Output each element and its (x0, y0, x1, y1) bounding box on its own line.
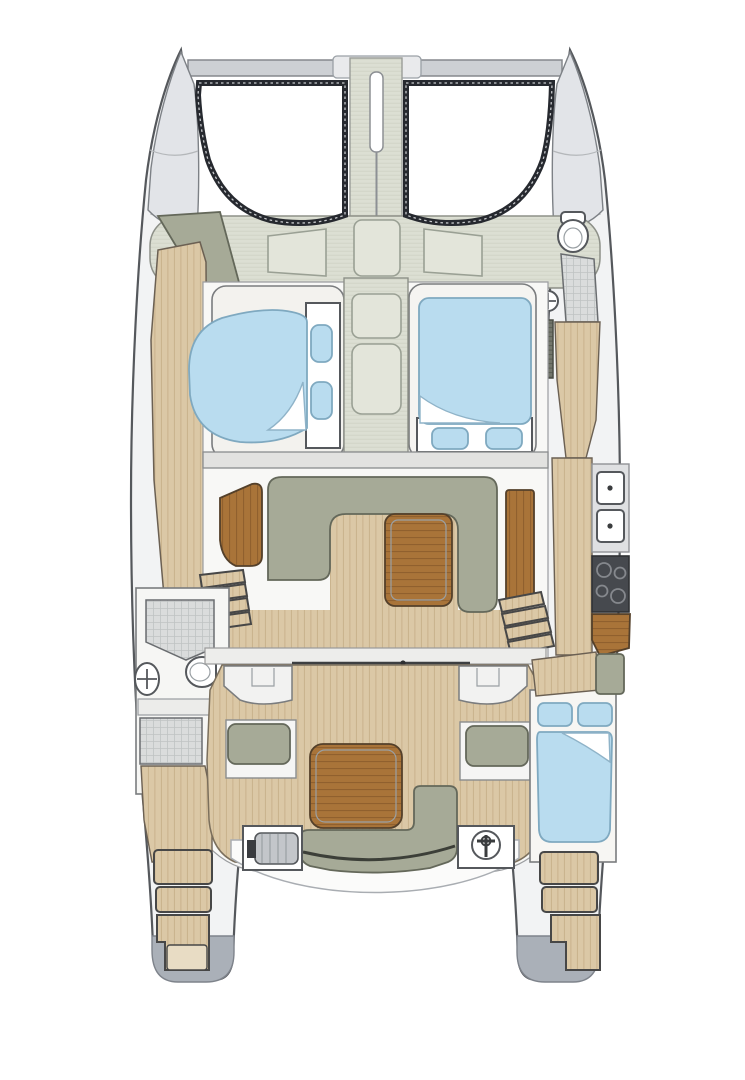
pillow (311, 325, 332, 362)
mast-bulkhead (203, 452, 548, 468)
foredeck-hatch-starboard (424, 229, 482, 276)
pillow (486, 428, 522, 449)
salon-table (385, 514, 452, 606)
mattress (419, 298, 531, 424)
deck-plan-drawing (0, 0, 745, 1080)
walkway-hatch-2 (352, 344, 401, 414)
port-trampoline (198, 83, 345, 223)
starboard-aft-cabin (530, 652, 624, 862)
cockpit-table (310, 744, 402, 828)
starboard-bench-cushion (466, 726, 528, 766)
starboard-forward-cabin-berth (417, 298, 532, 452)
salon-floor-aft (213, 610, 540, 650)
port-forward-cabin-berth (189, 303, 340, 448)
shower-floor-tiled (140, 718, 202, 764)
transom-locker (243, 826, 302, 870)
pillow (311, 382, 332, 419)
toilet-bowl (558, 220, 588, 252)
cabin-entry-wood (532, 652, 600, 696)
chart-seat (220, 484, 262, 566)
aft-deck-pad (596, 654, 624, 694)
galley-floor (552, 458, 592, 655)
galley (552, 458, 630, 656)
galley-cabinet (506, 490, 534, 604)
catamaran-floor-plan (0, 0, 745, 1080)
walkway-hatch-1 (352, 294, 401, 338)
starboard-bow-cone (552, 52, 603, 231)
starboard-trampoline (406, 83, 552, 223)
port-aft-side-deck (141, 766, 212, 862)
port-bench-cushion (228, 724, 290, 764)
foredeck-hatch-port (268, 229, 326, 276)
galley-worktop (592, 614, 630, 656)
winch-station (458, 826, 514, 868)
cockpit-bulkhead (205, 648, 546, 664)
shower-floor (561, 254, 598, 322)
forestay-slot (370, 72, 383, 152)
pillow (538, 703, 572, 726)
foredeck-hatch-center (354, 220, 400, 276)
sink-drain (607, 523, 612, 528)
cylinder-valve (247, 840, 256, 858)
pillow (578, 703, 612, 726)
port-bow-cone (148, 52, 199, 231)
sink-drain (607, 485, 612, 490)
galley-stove (592, 556, 629, 612)
pillow (432, 428, 468, 449)
